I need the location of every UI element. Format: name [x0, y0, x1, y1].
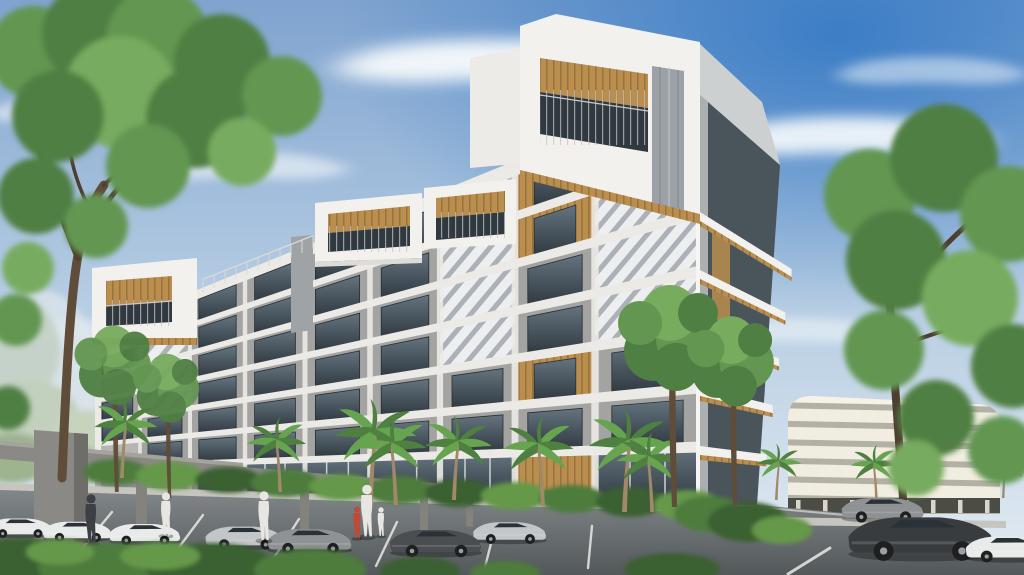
- architectural-rendering: [0, 0, 1024, 575]
- window: [199, 437, 236, 462]
- roof-box-3: [424, 179, 516, 249]
- window: [381, 379, 429, 415]
- pier: [243, 275, 247, 493]
- roof-box-2: [315, 193, 422, 267]
- rendering-canvas: [0, 0, 1024, 575]
- window: [452, 369, 503, 409]
- window: [534, 358, 576, 401]
